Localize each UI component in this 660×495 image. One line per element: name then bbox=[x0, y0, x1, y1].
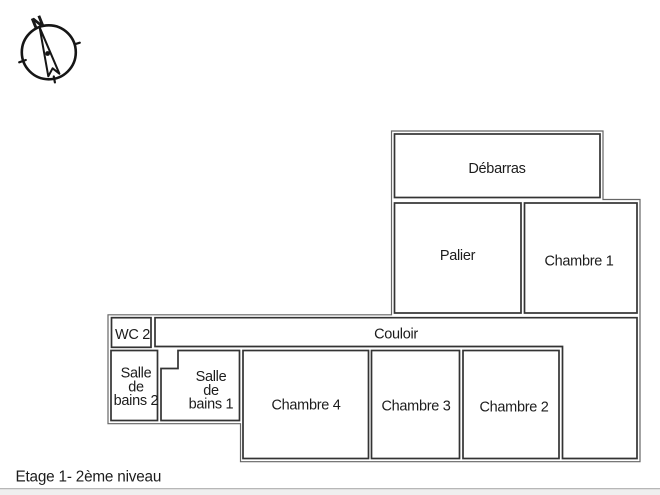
svg-text:Chambre 4: Chambre 4 bbox=[271, 398, 340, 414]
svg-text:Palier: Palier bbox=[440, 248, 476, 264]
svg-text:bains 2: bains 2 bbox=[114, 393, 159, 409]
svg-text:Chambre 1: Chambre 1 bbox=[544, 254, 613, 270]
svg-text:Chambre 3: Chambre 3 bbox=[381, 399, 450, 415]
svg-text:Etage 1- 2ème niveau: Etage 1- 2ème niveau bbox=[16, 469, 162, 486]
svg-text:Couloir: Couloir bbox=[374, 327, 418, 343]
svg-text:WC 2: WC 2 bbox=[115, 327, 150, 343]
svg-text:Débarras: Débarras bbox=[468, 161, 525, 177]
svg-text:bains 1: bains 1 bbox=[189, 397, 234, 413]
svg-text:Chambre 2: Chambre 2 bbox=[479, 400, 548, 416]
